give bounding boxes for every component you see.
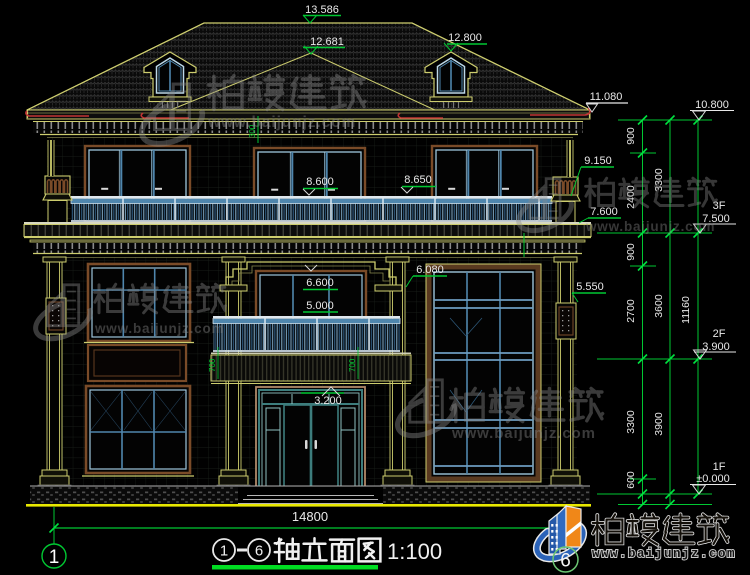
svg-text:2700: 2700 <box>625 299 637 323</box>
svg-text:12.681: 12.681 <box>310 36 344 48</box>
svg-text:1: 1 <box>49 547 60 568</box>
svg-text:±0.000: ±0.000 <box>696 473 730 485</box>
svg-text:9.150: 9.150 <box>584 155 612 167</box>
svg-text:600: 600 <box>625 471 637 489</box>
svg-text:1: 1 <box>220 543 228 560</box>
svg-text:www.baijunjz.com: www.baijunjz.com <box>451 425 596 442</box>
svg-text:11.080: 11.080 <box>590 91 623 103</box>
svg-text:8.600: 8.600 <box>306 176 334 188</box>
svg-text:6.600: 6.600 <box>306 277 334 289</box>
svg-text:7.600: 7.600 <box>590 206 618 218</box>
svg-text:www.baijunjz.com: www.baijunjz.com <box>94 321 224 336</box>
svg-text:5.000: 5.000 <box>306 300 334 312</box>
svg-text:13.586: 13.586 <box>305 4 339 16</box>
svg-text:900: 900 <box>625 243 637 261</box>
svg-text:900: 900 <box>625 127 637 145</box>
svg-text:3.900: 3.900 <box>702 341 730 353</box>
svg-text:www.baijunjz.com: www.baijunjz.com <box>585 219 715 234</box>
svg-text:10.800: 10.800 <box>695 99 729 111</box>
svg-text:11160: 11160 <box>680 296 692 324</box>
svg-text:www.baijunjz.com: www.baijunjz.com <box>592 547 736 561</box>
svg-text:6.080: 6.080 <box>416 264 444 276</box>
svg-text:3600: 3600 <box>653 294 665 318</box>
svg-text:700: 700 <box>348 358 357 372</box>
svg-text:1:100: 1:100 <box>387 539 442 564</box>
svg-text:5.550: 5.550 <box>576 281 604 293</box>
svg-text:3300: 3300 <box>625 410 637 434</box>
svg-text:14800: 14800 <box>292 509 328 524</box>
svg-text:2F: 2F <box>713 328 726 340</box>
svg-text:8.650: 8.650 <box>404 174 432 186</box>
svg-text:700: 700 <box>208 358 217 372</box>
svg-text:6: 6 <box>560 551 571 572</box>
svg-text:3900: 3900 <box>653 412 665 436</box>
svg-text:3.200: 3.200 <box>314 395 342 407</box>
svg-text:www.baijunjz.com: www.baijunjz.com <box>207 114 356 131</box>
svg-text:1F: 1F <box>713 461 726 473</box>
svg-text:12.800: 12.800 <box>448 32 482 44</box>
svg-text:6: 6 <box>255 543 263 560</box>
